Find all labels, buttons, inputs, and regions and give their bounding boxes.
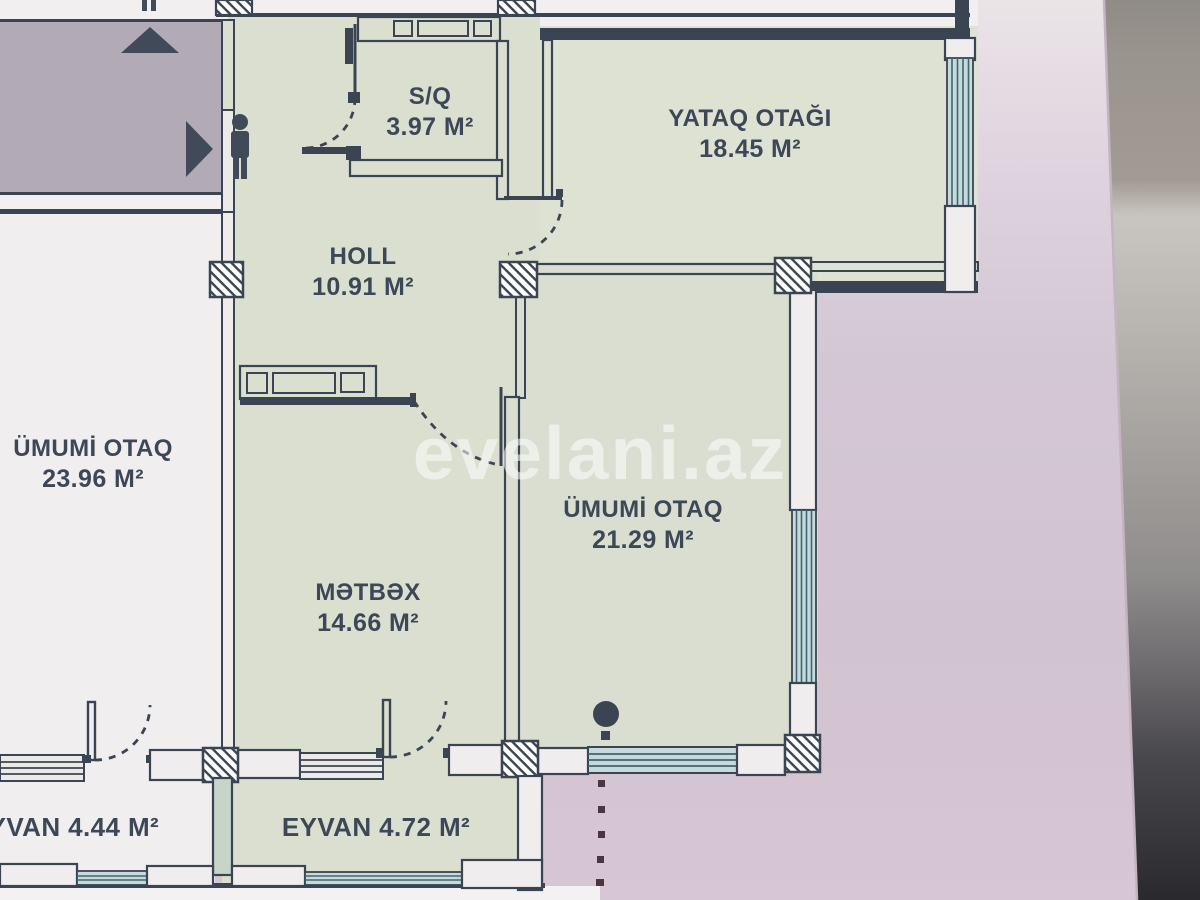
room-label-umumi-sag: ÜMUMİ OTAQ 21.29 M² <box>493 495 793 555</box>
room-name: S/Q <box>330 82 530 112</box>
window-eyvan-sol <box>77 871 147 885</box>
floorplan-photo: S/Q 3.97 M² YATAQ OTAĞI 18.45 M² HOLL 10… <box>0 0 1200 900</box>
room-area: 3.97 M² <box>330 112 530 142</box>
window-umumi-sag-bottom <box>588 747 737 773</box>
vent-shaft-mid <box>240 366 376 399</box>
room-label-eyvan-sag: EYVAN 4.72 M² <box>226 812 526 842</box>
window-yataq <box>947 58 973 206</box>
watermark: evelani.az <box>378 410 822 496</box>
room-name: ÜMUMİ OTAQ <box>493 495 793 525</box>
window-metbex <box>300 753 383 779</box>
room-area: 14.66 M² <box>268 608 468 638</box>
room-label-yataq: YATAQ OTAĞI 18.45 M² <box>600 104 900 164</box>
room-area: 23.96 M² <box>0 464 243 494</box>
room-name: YATAQ OTAĞI <box>600 104 900 134</box>
window-umumi-sag <box>792 510 816 683</box>
column-hatched <box>502 741 538 777</box>
room-label-eyvan-sol: EYVAN 4.44 M² <box>0 812 215 842</box>
window-umumi-sol <box>0 755 84 781</box>
room-label-sq: S/Q 3.97 M² <box>330 82 530 142</box>
room-umumi-sol-floor <box>0 212 234 781</box>
umumi-sag-window-wall <box>790 290 816 737</box>
room-label-metbex: MƏTBƏX 14.66 M² <box>268 578 468 638</box>
column-hatched <box>210 262 243 297</box>
bedroom-window-wall <box>945 38 975 292</box>
room-label-holl: HOLL 10.91 M² <box>263 242 463 302</box>
room-area: 10.91 M² <box>263 272 463 302</box>
room-area: 18.45 M² <box>600 134 900 164</box>
room-name: ÜMUMİ OTAQ <box>0 434 243 464</box>
room-name: HOLL <box>263 242 463 272</box>
entrance-wall <box>222 20 234 757</box>
room-name: MƏTBƏX <box>268 578 468 608</box>
column-hatched <box>775 258 811 293</box>
window-eyvan-sag <box>305 872 462 885</box>
column-hatched <box>500 262 537 297</box>
column-hatched <box>785 735 820 772</box>
room-label-umumi-sol: ÜMUMİ OTAQ 23.96 M² <box>0 434 243 494</box>
room-area: 21.29 M² <box>493 525 793 555</box>
